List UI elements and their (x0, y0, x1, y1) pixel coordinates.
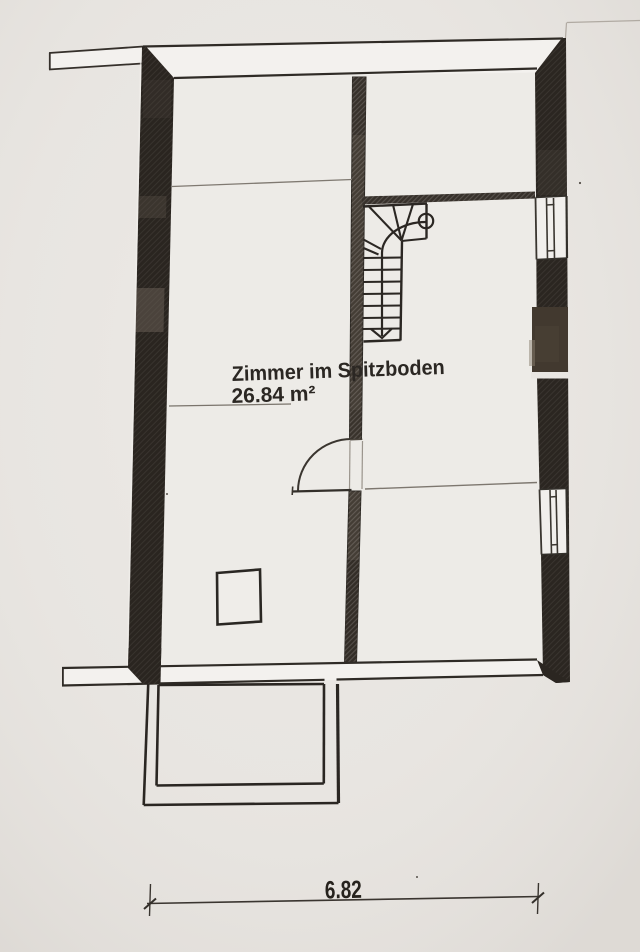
svg-text:6.82: 6.82 (325, 876, 363, 905)
